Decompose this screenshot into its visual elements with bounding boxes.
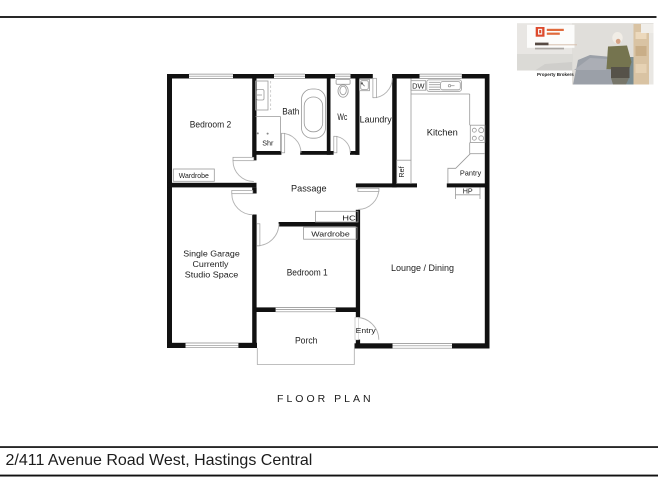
svg-text:HC: HC (342, 214, 356, 223)
svg-text:Wardrobe: Wardrobe (179, 173, 209, 180)
svg-text:Shr: Shr (262, 138, 274, 147)
svg-text:Kitchen: Kitchen (427, 128, 458, 138)
svg-text:Single Garage: Single Garage (183, 248, 240, 258)
svg-text:FLOOR PLAN: FLOOR PLAN (277, 393, 374, 405)
svg-text:Studio Space: Studio Space (185, 270, 239, 280)
svg-text:Property Brokers: Property Brokers (537, 72, 574, 77)
svg-text:Bath: Bath (282, 107, 299, 117)
svg-text:Laundry: Laundry (360, 115, 393, 125)
svg-text:Wc: Wc (337, 112, 347, 122)
svg-text:Wardrobe: Wardrobe (311, 229, 350, 238)
svg-text:DW: DW (412, 82, 424, 91)
svg-text:Entry: Entry (356, 326, 376, 335)
svg-text:Ref: Ref (397, 166, 406, 177)
svg-text:HP: HP (463, 187, 473, 196)
svg-text:Passage: Passage (291, 184, 327, 194)
svg-text:Pantry: Pantry (460, 168, 482, 177)
svg-text:Bedroom 2: Bedroom 2 (190, 119, 232, 129)
svg-text:Bedroom 1: Bedroom 1 (287, 267, 328, 277)
svg-text:Currently: Currently (193, 259, 230, 269)
svg-text:Lounge / Dining: Lounge / Dining (391, 263, 454, 273)
svg-text:2/411 Avenue Road West, Hastin: 2/411 Avenue Road West, Hastings Central (6, 452, 313, 469)
svg-text:Porch: Porch (295, 335, 318, 345)
